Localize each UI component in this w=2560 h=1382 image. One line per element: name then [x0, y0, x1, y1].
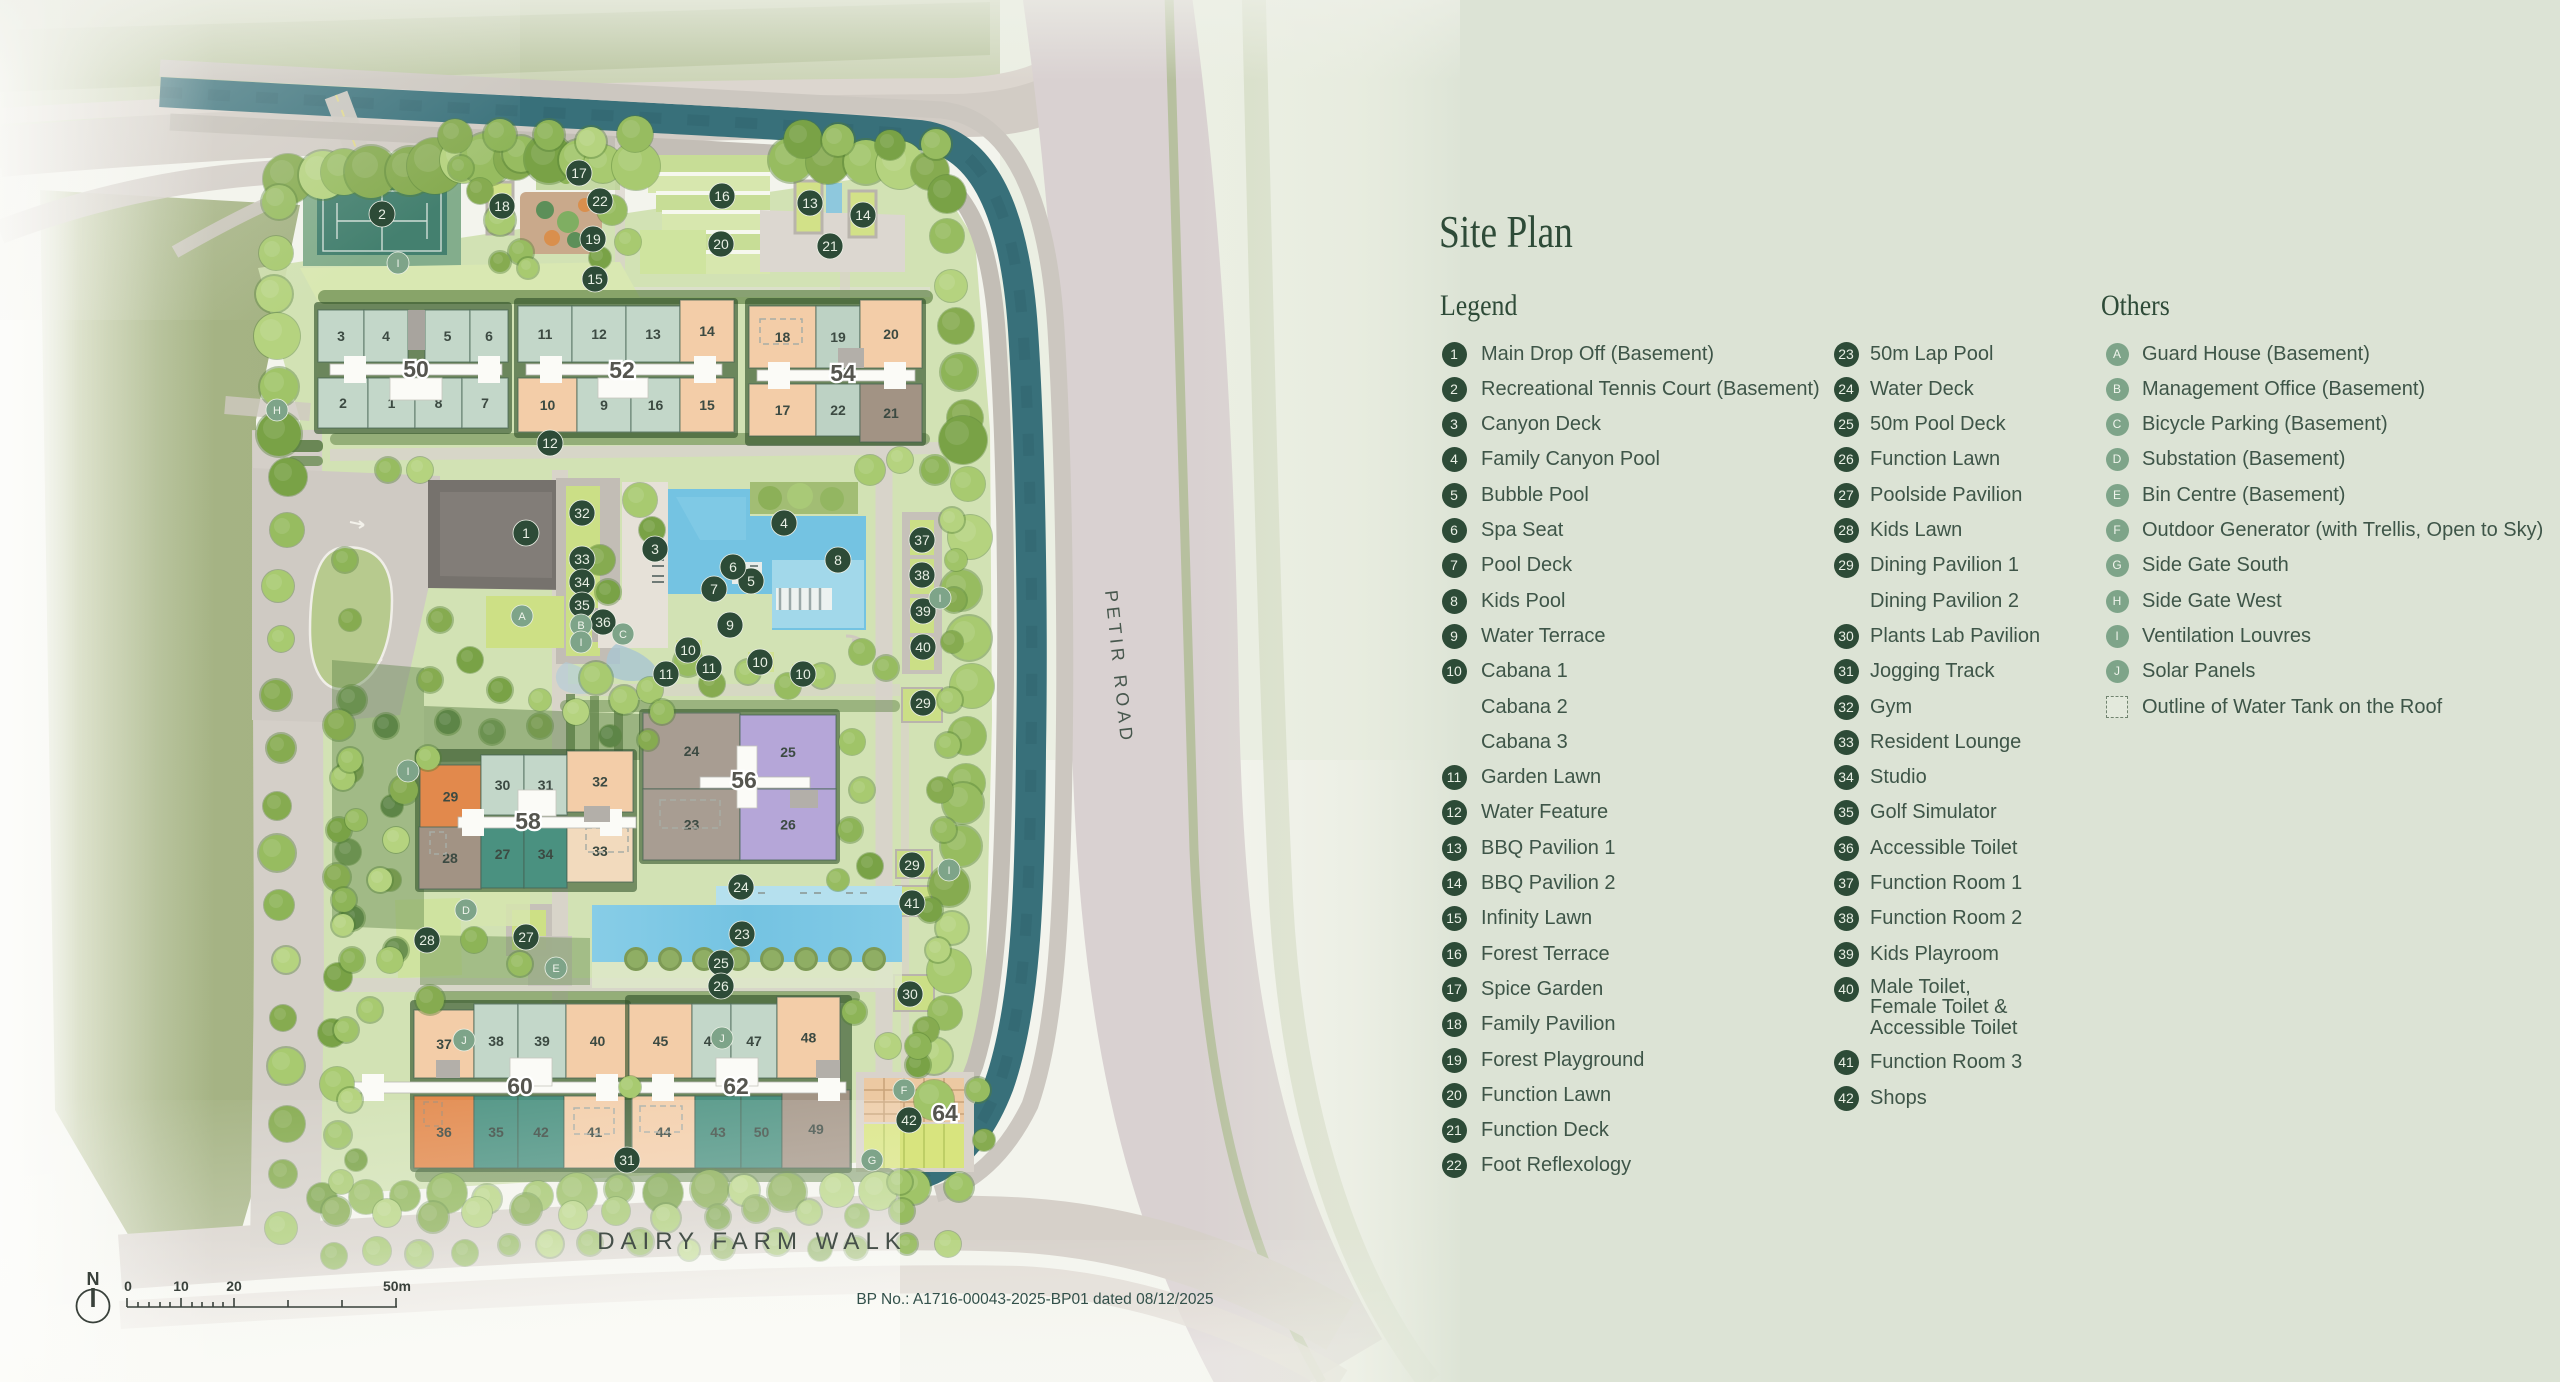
svg-text:DAIRY FARM WALK: DAIRY FARM WALK: [597, 1228, 907, 1255]
svg-text:10: 10: [795, 666, 811, 682]
svg-text:39: 39: [915, 603, 931, 619]
svg-text:C: C: [619, 629, 627, 641]
svg-text:20: 20: [883, 326, 899, 342]
svg-text:2: 2: [378, 206, 386, 222]
svg-text:38: 38: [488, 1033, 504, 1049]
svg-text:60: 60: [507, 1073, 533, 1099]
svg-text:23: 23: [734, 926, 750, 942]
svg-text:50m: 50m: [383, 1278, 411, 1294]
svg-text:39: 39: [534, 1033, 550, 1049]
svg-text:36: 36: [595, 614, 611, 630]
svg-text:45: 45: [653, 1033, 669, 1049]
svg-text:I: I: [406, 766, 409, 778]
svg-text:54: 54: [830, 360, 856, 386]
svg-text:56: 56: [731, 767, 757, 793]
svg-text:10: 10: [540, 397, 556, 413]
svg-text:E: E: [552, 963, 559, 975]
svg-text:24: 24: [684, 743, 700, 759]
svg-text:58: 58: [515, 808, 541, 834]
svg-text:I: I: [938, 593, 941, 605]
svg-text:F: F: [901, 1085, 908, 1097]
svg-text:40: 40: [915, 639, 931, 655]
svg-text:3: 3: [651, 541, 659, 557]
svg-text:28: 28: [442, 850, 458, 866]
svg-text:4: 4: [382, 328, 390, 344]
svg-text:42: 42: [901, 1112, 917, 1128]
svg-text:A: A: [518, 611, 526, 623]
svg-text:I: I: [947, 865, 950, 877]
svg-text:J: J: [719, 1033, 725, 1045]
svg-text:BP No.: A1716-00043-2025-BP01: BP No.: A1716-00043-2025-BP01 dated 08/1…: [856, 1291, 1213, 1308]
svg-text:52: 52: [609, 357, 635, 383]
svg-text:34: 34: [574, 574, 590, 590]
svg-text:I: I: [396, 258, 399, 270]
svg-text:11: 11: [538, 326, 553, 342]
svg-text:29: 29: [443, 788, 459, 804]
svg-text:31: 31: [619, 1152, 635, 1168]
svg-text:26: 26: [780, 816, 796, 832]
svg-text:12: 12: [542, 435, 558, 451]
svg-text:10: 10: [680, 642, 696, 658]
svg-text:11: 11: [659, 666, 674, 682]
svg-text:22: 22: [592, 193, 608, 209]
svg-text:30: 30: [902, 986, 918, 1002]
svg-text:16: 16: [714, 188, 730, 204]
svg-text:24: 24: [733, 879, 749, 895]
svg-text:25: 25: [713, 955, 729, 971]
svg-text:25: 25: [780, 744, 796, 760]
svg-text:23: 23: [684, 816, 700, 832]
svg-text:16: 16: [648, 397, 664, 413]
svg-text:27: 27: [518, 929, 534, 945]
svg-text:38: 38: [914, 567, 930, 583]
svg-text:37: 37: [914, 532, 930, 548]
svg-text:22: 22: [830, 402, 846, 418]
svg-text:9: 9: [726, 617, 734, 633]
svg-text:33: 33: [592, 843, 608, 859]
svg-text:20: 20: [713, 236, 729, 252]
svg-text:12: 12: [591, 326, 607, 342]
svg-text:G: G: [868, 1155, 877, 1167]
svg-text:6: 6: [729, 559, 737, 575]
svg-text:7: 7: [481, 395, 489, 411]
svg-text:64: 64: [932, 1100, 958, 1126]
svg-text:18: 18: [494, 198, 510, 214]
svg-text:27: 27: [495, 846, 511, 862]
svg-text:40: 40: [590, 1033, 606, 1049]
svg-text:21: 21: [822, 238, 838, 254]
svg-text:8: 8: [834, 552, 842, 568]
svg-text:15: 15: [587, 271, 603, 287]
svg-text:41: 41: [904, 895, 920, 911]
svg-text:17: 17: [775, 402, 791, 418]
svg-text:29: 29: [904, 857, 920, 873]
svg-text:13: 13: [645, 326, 661, 342]
svg-text:D: D: [462, 905, 470, 917]
svg-text:11: 11: [702, 660, 717, 676]
svg-text:33: 33: [574, 551, 590, 567]
svg-text:10: 10: [752, 654, 768, 670]
svg-text:7: 7: [710, 581, 718, 597]
svg-text:2: 2: [339, 395, 347, 411]
svg-text:34: 34: [538, 846, 554, 862]
svg-text:6: 6: [485, 328, 493, 344]
svg-text:32: 32: [574, 505, 590, 521]
svg-text:47: 47: [746, 1033, 762, 1049]
svg-text:18: 18: [775, 329, 791, 345]
svg-text:28: 28: [419, 932, 435, 948]
svg-text:35: 35: [574, 597, 590, 613]
svg-text:H: H: [273, 405, 281, 417]
svg-text:3: 3: [337, 328, 345, 344]
svg-text:32: 32: [592, 773, 608, 789]
svg-text:30: 30: [495, 777, 511, 793]
svg-text:5: 5: [747, 573, 755, 589]
svg-text:14: 14: [699, 323, 715, 339]
svg-text:1: 1: [522, 525, 530, 541]
svg-text:4: 4: [780, 515, 788, 531]
svg-text:19: 19: [830, 329, 846, 345]
svg-text:48: 48: [801, 1029, 817, 1045]
svg-text:21: 21: [883, 405, 899, 421]
svg-text:9: 9: [600, 397, 608, 413]
svg-text:50: 50: [403, 356, 429, 382]
svg-text:0: 0: [124, 1278, 132, 1294]
svg-text:17: 17: [571, 165, 587, 181]
svg-text:13: 13: [802, 195, 818, 211]
svg-text:29: 29: [915, 695, 931, 711]
svg-text:N: N: [87, 1269, 100, 1289]
svg-text:26: 26: [713, 978, 729, 994]
svg-text:B: B: [577, 620, 584, 632]
svg-text:J: J: [461, 1035, 467, 1047]
svg-text:15: 15: [699, 397, 715, 413]
svg-text:19: 19: [585, 231, 601, 247]
svg-text:20: 20: [226, 1278, 242, 1294]
svg-text:10: 10: [173, 1278, 189, 1294]
svg-text:37: 37: [436, 1036, 452, 1052]
svg-text:5: 5: [444, 328, 452, 344]
svg-text:62: 62: [723, 1073, 749, 1099]
svg-text:I: I: [579, 637, 582, 649]
svg-text:14: 14: [855, 207, 871, 223]
